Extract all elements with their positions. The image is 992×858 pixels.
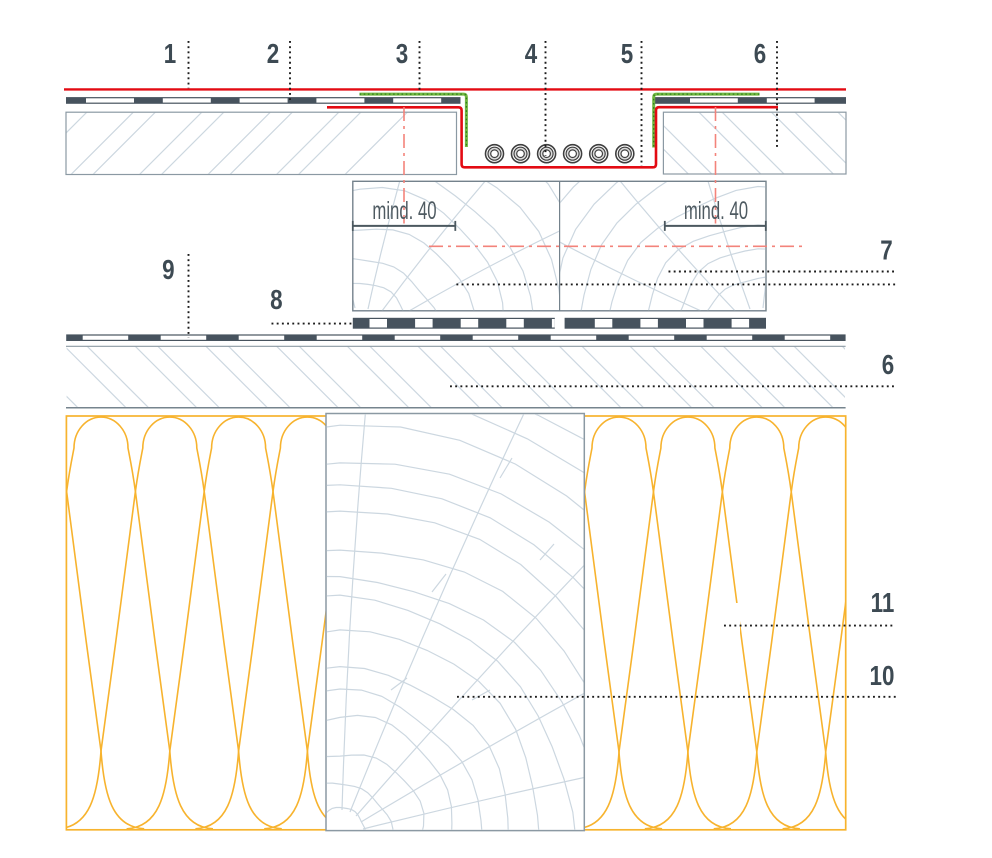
svg-text:7: 7 — [880, 235, 892, 266]
svg-text:6: 6 — [882, 350, 894, 381]
svg-text:11: 11 — [871, 588, 895, 619]
svg-text:1: 1 — [164, 39, 176, 70]
svg-text:2: 2 — [267, 39, 279, 70]
svg-text:8: 8 — [270, 285, 282, 316]
svg-text:mind. 40: mind. 40 — [684, 197, 748, 225]
svg-text:6: 6 — [754, 39, 766, 70]
svg-text:mind. 40: mind. 40 — [372, 197, 436, 225]
svg-text:3: 3 — [396, 39, 408, 70]
svg-text:5: 5 — [621, 39, 633, 70]
svg-text:10: 10 — [870, 661, 895, 692]
svg-text:4: 4 — [525, 39, 537, 70]
svg-text:9: 9 — [162, 255, 174, 286]
